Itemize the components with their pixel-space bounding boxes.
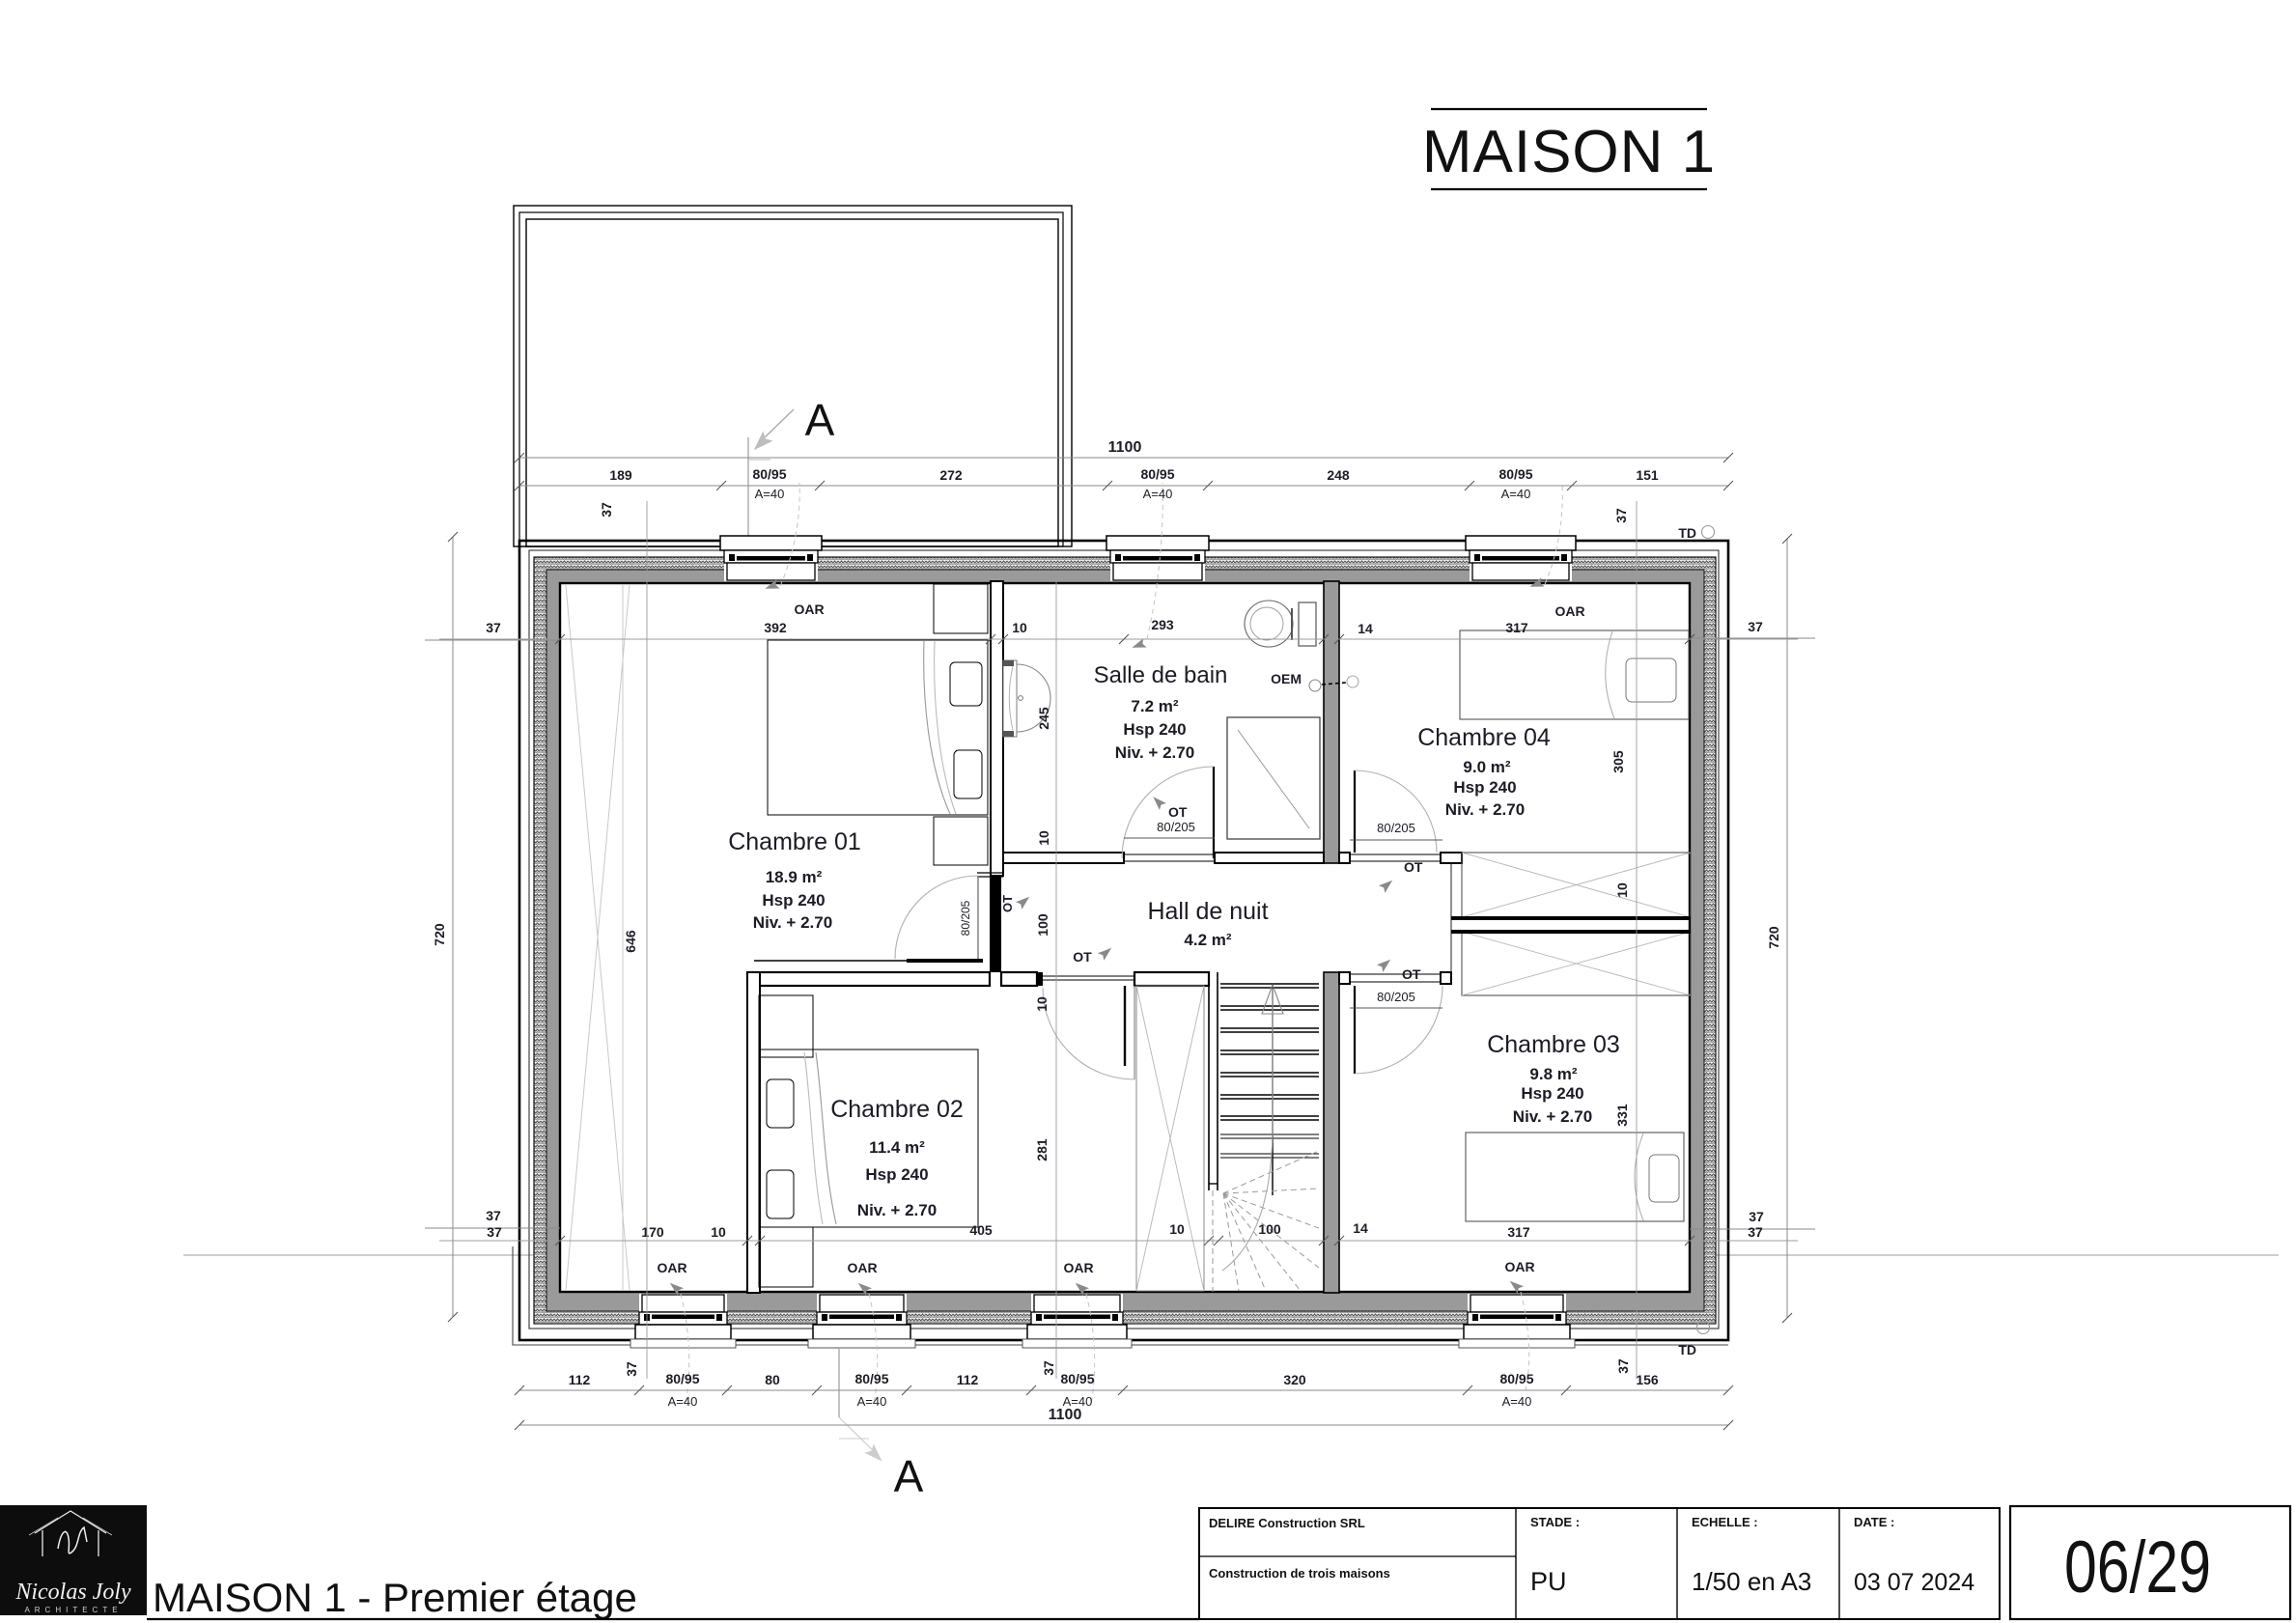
svg-text:OT: OT [1402,966,1421,982]
svg-text:10: 10 [1036,830,1051,846]
svg-text:720: 720 [1766,926,1781,949]
svg-text:320: 320 [1283,1372,1306,1387]
svg-text:1100: 1100 [1108,439,1142,456]
svg-text:Hsp 240: Hsp 240 [865,1165,928,1184]
svg-text:OAR: OAR [657,1260,686,1275]
svg-text:317: 317 [1507,1224,1530,1240]
svg-text:Chambre 02: Chambre 02 [830,1096,964,1123]
svg-text:Construction de trois maisons: Construction de trois maisons [1209,1566,1390,1581]
svg-text:80/205: 80/205 [1157,820,1195,834]
svg-text:248: 248 [1327,467,1350,483]
svg-text:10: 10 [1614,882,1630,898]
svg-text:OEM: OEM [1271,671,1302,686]
svg-text:156: 156 [1636,1372,1659,1387]
svg-text:OT: OT [1404,859,1423,875]
svg-text:37: 37 [486,620,501,635]
svg-text:Niv. + 2.70: Niv. + 2.70 [1445,800,1525,819]
svg-text:80/205: 80/205 [1377,990,1415,1004]
svg-text:80/95: 80/95 [1499,1371,1533,1386]
svg-text:80: 80 [765,1372,780,1387]
svg-text:80/95: 80/95 [854,1371,888,1386]
svg-text:9.0 m²: 9.0 m² [1463,758,1510,776]
svg-text:Nicolas Joly: Nicolas Joly [14,1580,131,1605]
svg-text:151: 151 [1636,467,1659,483]
svg-text:OAR: OAR [847,1260,877,1275]
svg-text:14: 14 [1358,621,1373,636]
svg-text:03 07 2024: 03 07 2024 [1854,1569,1974,1596]
svg-text:10: 10 [1169,1221,1185,1237]
svg-text:A: A [805,395,835,445]
svg-text:OAR: OAR [1504,1259,1534,1274]
svg-text:112: 112 [957,1372,979,1387]
svg-text:100: 100 [1035,913,1050,937]
svg-text:OAR: OAR [1063,1260,1093,1275]
svg-text:Chambre 01: Chambre 01 [728,828,861,855]
svg-text:1100: 1100 [1049,1407,1082,1423]
svg-text:A=40: A=40 [1502,1394,1532,1409]
svg-text:4.2 m²: 4.2 m² [1184,931,1231,949]
svg-text:37: 37 [1749,1209,1764,1224]
svg-text:ARCHITECTE: ARCHITECTE [24,1606,122,1614]
svg-text:TD: TD [1678,525,1696,541]
svg-text:10: 10 [1012,620,1027,635]
svg-text:170: 170 [641,1224,664,1240]
svg-text:281: 281 [1034,1138,1050,1161]
svg-text:DELIRE Construction SRL: DELIRE Construction SRL [1209,1516,1365,1530]
svg-text:Chambre 04: Chambre 04 [1417,724,1551,751]
svg-text:OT: OT [1000,895,1015,912]
svg-text:37: 37 [1041,1360,1056,1376]
svg-text:A: A [894,1451,924,1501]
svg-text:MAISON 1 - Premier étage: MAISON 1 - Premier étage [153,1575,637,1620]
svg-text:11.4 m²: 11.4 m² [869,1138,925,1157]
svg-text:Hall de nuit: Hall de nuit [1147,898,1268,925]
svg-text:OAR: OAR [794,602,824,617]
svg-text:Niv. + 2.70: Niv. + 2.70 [1513,1107,1592,1126]
svg-text:9.8 m²: 9.8 m² [1529,1065,1577,1083]
svg-text:1/50 en A3: 1/50 en A3 [1692,1567,1811,1596]
svg-text:7.2 m²: 7.2 m² [1131,697,1178,715]
svg-text:331: 331 [1614,1104,1630,1127]
svg-text:ECHELLE :: ECHELLE : [1692,1515,1758,1529]
svg-text:A=40: A=40 [755,487,785,501]
svg-text:80/205: 80/205 [1377,821,1415,835]
svg-text:112: 112 [569,1372,591,1387]
svg-text:37: 37 [487,1224,502,1240]
svg-text:405: 405 [969,1222,993,1238]
svg-text:392: 392 [764,620,787,635]
svg-text:Niv. + 2.70: Niv. + 2.70 [857,1201,937,1219]
svg-text:A=40: A=40 [668,1394,698,1409]
svg-text:100: 100 [1258,1221,1281,1237]
svg-text:STADE :: STADE : [1530,1515,1580,1529]
svg-text:646: 646 [623,930,638,953]
svg-text:720: 720 [432,923,447,946]
svg-text:18.9 m²: 18.9 m² [766,868,823,886]
svg-text:MAISON 1: MAISON 1 [1422,119,1716,185]
svg-text:80/95: 80/95 [752,466,786,482]
svg-text:OAR: OAR [1554,603,1584,619]
svg-text:TD: TD [1678,1342,1696,1357]
svg-text:06/29: 06/29 [2064,1526,2211,1609]
svg-text:Chambre 03: Chambre 03 [1487,1031,1620,1058]
svg-text:A=40: A=40 [1143,487,1173,501]
svg-text:37: 37 [1613,508,1629,523]
svg-text:305: 305 [1610,750,1626,773]
svg-text:A=40: A=40 [1501,487,1531,501]
svg-text:Hsp 240: Hsp 240 [762,891,825,909]
svg-text:80/95: 80/95 [1498,466,1532,482]
svg-text:Salle de bain: Salle de bain [1094,662,1228,688]
svg-text:317: 317 [1505,620,1528,635]
svg-text:DATE :: DATE : [1854,1515,1894,1529]
svg-text:Hsp 240: Hsp 240 [1453,778,1516,797]
svg-text:PU: PU [1530,1567,1567,1596]
svg-text:OT: OT [1073,949,1092,965]
svg-text:Hsp 240: Hsp 240 [1123,720,1186,739]
svg-text:80/95: 80/95 [665,1371,699,1386]
svg-text:Hsp 240: Hsp 240 [1521,1084,1583,1103]
svg-text:37: 37 [1748,619,1763,634]
svg-text:80/205: 80/205 [959,900,972,936]
svg-text:37: 37 [486,1208,501,1223]
svg-text:80/95: 80/95 [1060,1371,1094,1386]
svg-text:37: 37 [599,502,614,518]
svg-text:293: 293 [1151,617,1174,632]
svg-text:14: 14 [1353,1220,1368,1236]
svg-text:A=40: A=40 [857,1394,887,1409]
svg-text:272: 272 [939,467,963,483]
svg-text:245: 245 [1036,707,1051,730]
svg-text:Niv. + 2.70: Niv. + 2.70 [753,913,832,932]
svg-text:Niv. + 2.70: Niv. + 2.70 [1115,743,1194,762]
svg-text:10: 10 [711,1224,726,1240]
svg-text:OT: OT [1168,804,1188,820]
svg-text:37: 37 [1748,1224,1763,1240]
svg-text:10: 10 [1034,996,1050,1012]
svg-text:80/95: 80/95 [1140,466,1174,482]
svg-text:37: 37 [624,1361,639,1377]
svg-text:189: 189 [609,467,632,483]
svg-text:37: 37 [1615,1358,1631,1374]
